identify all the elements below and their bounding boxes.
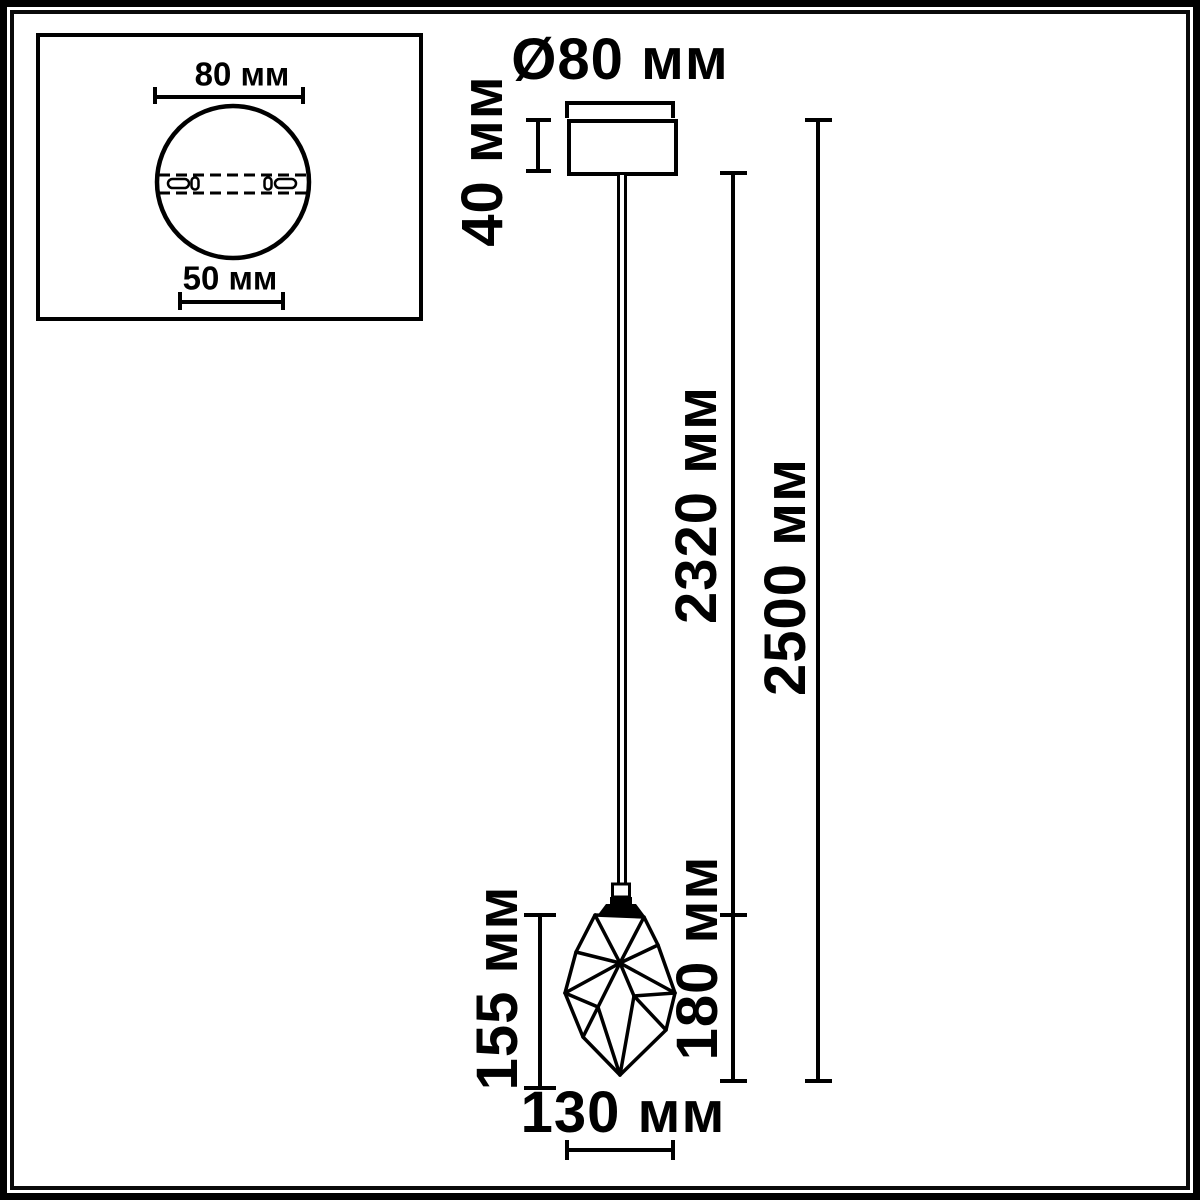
mounting-slot-left: [168, 179, 189, 188]
canopy-dim-line: [565, 101, 675, 105]
shade-width-label: 130 мм: [521, 1084, 726, 1142]
inset-bottom-width-label: 50 мм: [183, 262, 278, 295]
shade-width-dim-line: [567, 1148, 675, 1152]
inset-bottom-dim-tick-right: [281, 292, 285, 310]
total-height-tick-bottom: [805, 1079, 832, 1083]
shade-height-left-label: 155 мм: [469, 886, 527, 1091]
socket-band: [610, 897, 632, 904]
cord-length-label: 2320 мм: [668, 386, 726, 624]
cord-dim-tick-top: [720, 171, 747, 175]
mounting-hole-left: [192, 178, 199, 190]
inset-bottom-dim-line: [180, 300, 285, 304]
canopy: [567, 119, 678, 176]
shade-width-tick-left: [565, 1140, 569, 1160]
cord-and-shade-dim-line: [731, 173, 735, 1083]
shade-width-tick-right: [671, 1140, 675, 1160]
canopy-height-label: 40 мм: [454, 75, 512, 246]
total-height-tick-top: [805, 118, 832, 122]
mounting-slot-right: [275, 179, 296, 188]
canopy-height-tick-top: [526, 118, 551, 122]
canopy-diameter-label: Ø80 мм: [511, 31, 729, 89]
canopy-dim-tick-right: [671, 101, 675, 118]
canopy-height-tick-bottom: [526, 169, 551, 173]
crystal-shade: [565, 915, 675, 1075]
suspension-cable: [617, 175, 627, 886]
shade-assembly: [550, 855, 700, 1090]
canopy-dim-tick-left: [565, 101, 569, 118]
inset-top-width-label: 80 мм: [195, 58, 290, 91]
shade-height-left-dim-line: [538, 915, 542, 1090]
mounting-hole-right: [265, 178, 272, 190]
socket-cap: [613, 884, 630, 897]
canopy-height-dim-line: [536, 120, 540, 173]
dimension-drawing: 80 мм 50 мм Ø80 мм 40 мм 2320 мм 180 мм …: [0, 0, 1200, 1200]
total-height-label: 2500 мм: [757, 458, 815, 696]
inset-bottom-dim-tick-left: [178, 292, 182, 310]
